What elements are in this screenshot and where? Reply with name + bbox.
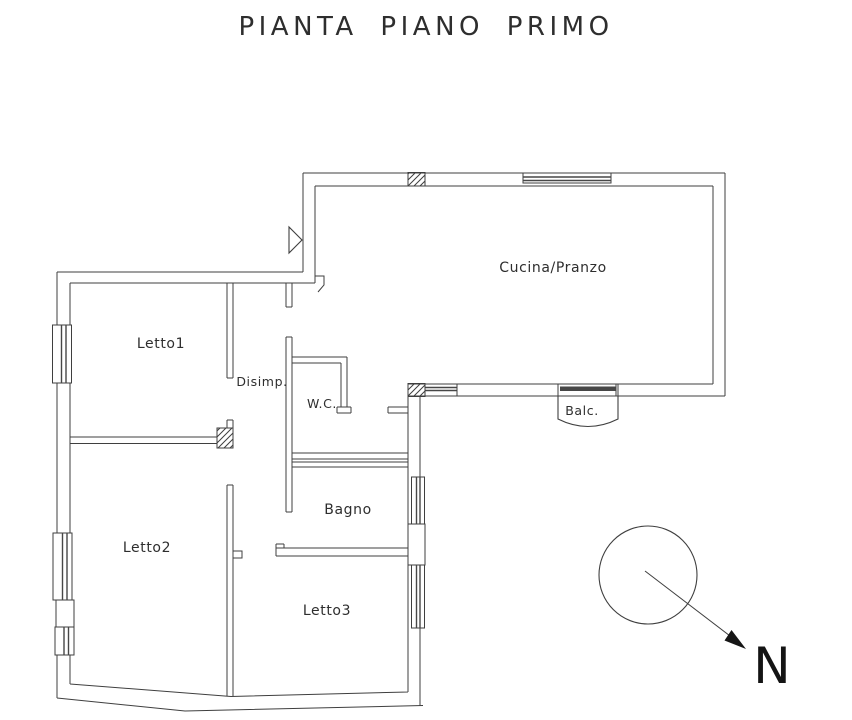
room-label-letto3: Letto3: [303, 604, 351, 618]
window-glazing: [62, 177, 612, 655]
floor-plan-drawing: [0, 0, 852, 720]
window-blocks: [53, 173, 612, 655]
room-label-cucina: Cucina/Pranzo: [499, 261, 607, 275]
room-label-letto1: Letto1: [137, 337, 185, 351]
room-label-bagno: Bagno: [324, 503, 372, 517]
room-label-disimp: Disimp.: [236, 376, 287, 389]
floor-plan-page: PIANTA PIANO PRIMO: [0, 0, 852, 720]
room-label-wc: W.C.: [307, 398, 337, 411]
room-label-letto2: Letto2: [123, 541, 171, 555]
north-label: N: [753, 637, 790, 695]
wall-lines: [57, 173, 725, 711]
north-compass-icon: [599, 526, 746, 649]
entrance-arrow-icon: [289, 227, 302, 253]
room-label-balc: Balc.: [565, 405, 599, 418]
balcony-door-band: [560, 387, 616, 392]
